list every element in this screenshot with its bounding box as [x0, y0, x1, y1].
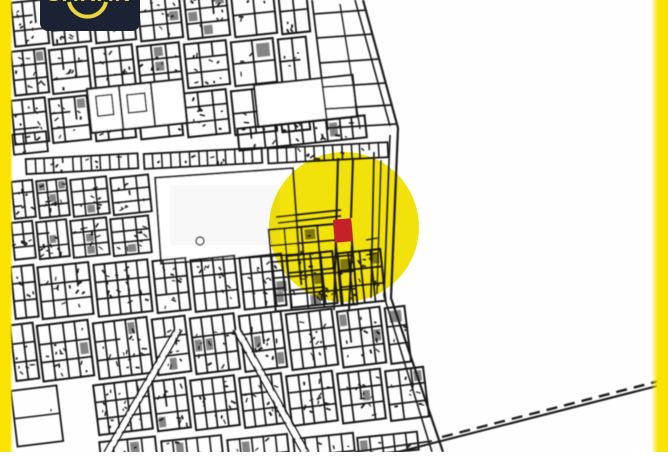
svg-text:SAKAN: SAKAN [46, 0, 132, 6]
